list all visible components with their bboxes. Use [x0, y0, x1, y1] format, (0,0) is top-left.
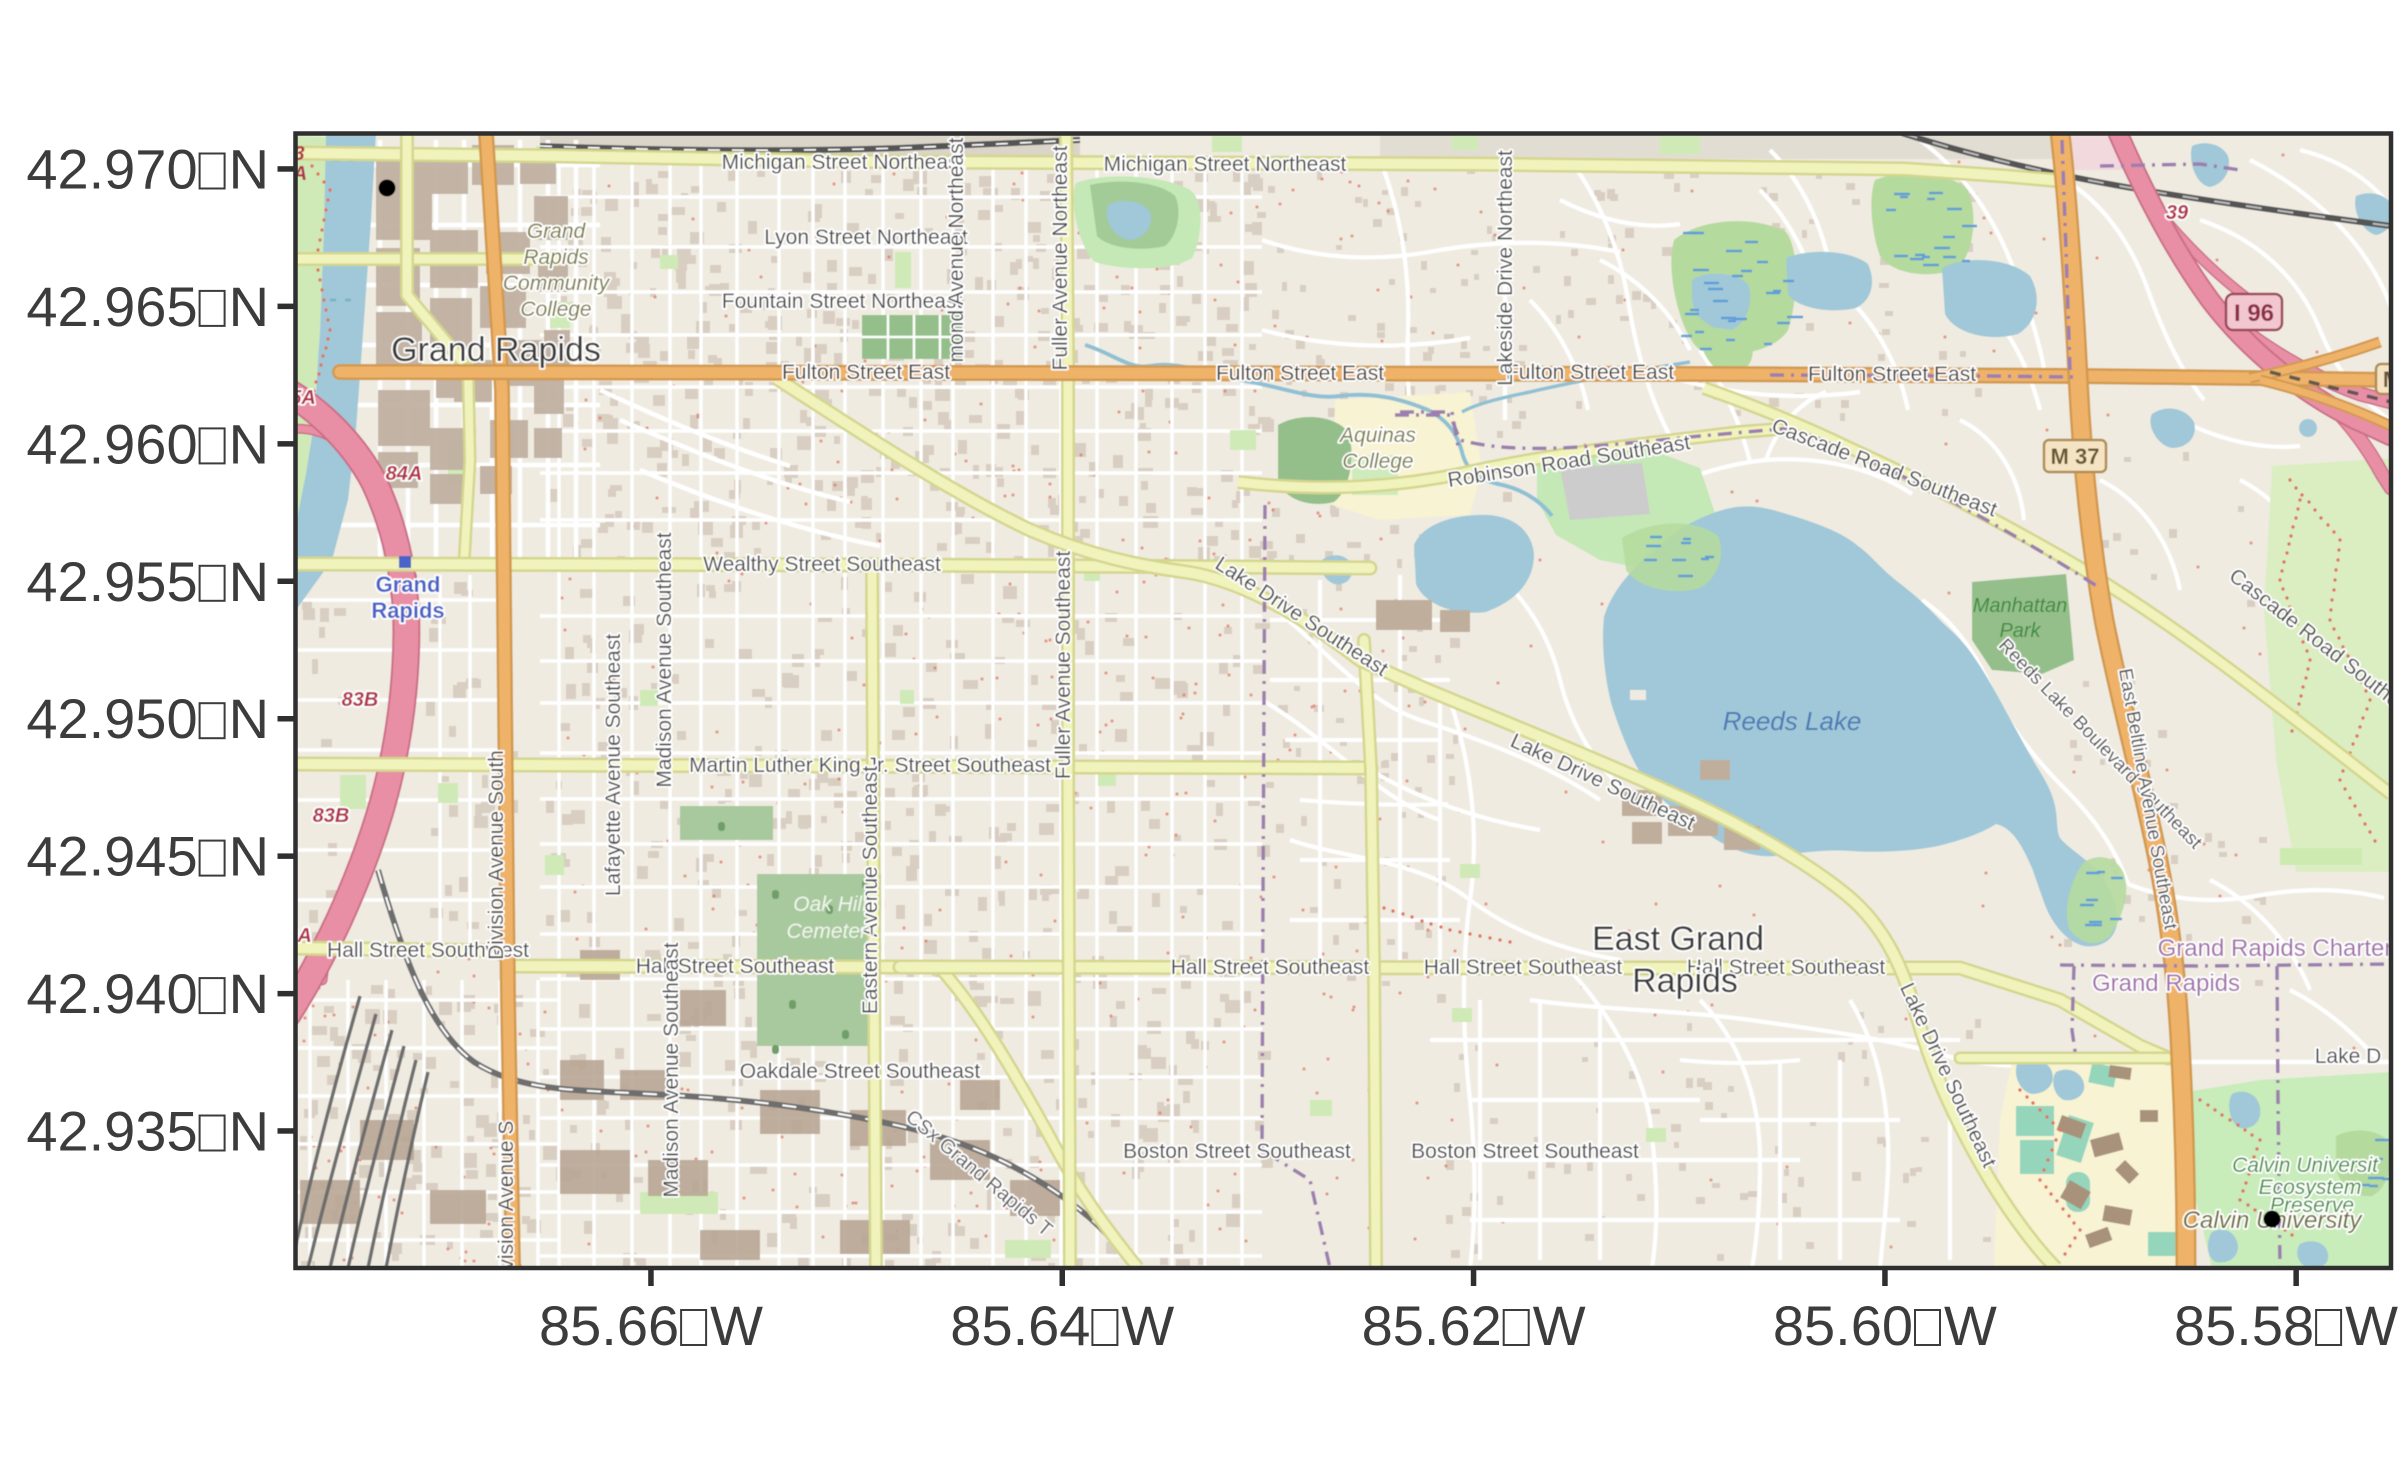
svg-text:Grand Rapids: Grand Rapids — [391, 331, 601, 369]
svg-text:N: N — [229, 1100, 269, 1163]
svg-text:Lake D: Lake D — [2315, 1045, 2382, 1068]
svg-text:85.64: 85.64 — [950, 1294, 1090, 1357]
svg-text:W: W — [2345, 1294, 2398, 1357]
svg-text:42.940: 42.940 — [26, 962, 197, 1025]
svg-text:Grand Rapids: Grand Rapids — [2092, 970, 2240, 997]
svg-text:42.970: 42.970 — [26, 138, 197, 201]
svg-text:N: N — [229, 550, 269, 613]
svg-text:Division Avenue S: Division Avenue S — [495, 1121, 518, 1290]
svg-text:42.945: 42.945 — [26, 825, 197, 888]
svg-text:Fulton Street East: Fulton Street East — [782, 361, 950, 384]
svg-text:84A: 84A — [386, 463, 423, 485]
svg-text:Rapids: Rapids — [1632, 962, 1738, 1000]
svg-text:W: W — [1944, 1294, 1997, 1357]
svg-text:Rapids: Rapids — [371, 598, 444, 623]
svg-text:83B: 83B — [342, 689, 379, 711]
svg-text:College: College — [1342, 450, 1413, 473]
svg-text:N: N — [229, 412, 269, 475]
svg-text:W: W — [1121, 1294, 1174, 1357]
svg-text:Oakdale Street Southeast: Oakdale Street Southeast — [740, 1060, 981, 1083]
svg-text:85.58: 85.58 — [2174, 1294, 2314, 1357]
svg-text:East Grand: East Grand — [1592, 920, 1764, 958]
svg-text:Aquinas: Aquinas — [1338, 424, 1416, 447]
svg-text:Community: Community — [503, 272, 611, 295]
svg-text:N: N — [229, 687, 269, 750]
svg-text:N: N — [229, 825, 269, 888]
svg-text:83B: 83B — [313, 805, 350, 827]
svg-text:Fulton Street East: Fulton Street East — [1216, 362, 1384, 385]
svg-text:Boston Street Southeast: Boston Street Southeast — [1411, 1140, 1639, 1163]
svg-text:Boston Street Southeast: Boston Street Southeast — [1123, 1140, 1351, 1163]
svg-text:Fulton Street East: Fulton Street East — [1808, 363, 1976, 386]
svg-text:Oak Hill: Oak Hill — [793, 893, 868, 916]
svg-text:Fuller Avenue Northeast: Fuller Avenue Northeast — [1049, 145, 1072, 370]
svg-text:Hall Street Southeast: Hall Street Southeast — [1171, 956, 1370, 979]
svg-text:Division Avenue South: Division Avenue South — [485, 750, 508, 960]
svg-text:I 96: I 96 — [2234, 300, 2274, 327]
svg-text:Grand: Grand — [376, 572, 441, 597]
svg-text:Lafayette Avenue Southeast: Lafayette Avenue Southeast — [602, 634, 625, 896]
svg-text:Grand Rapids Charter: Grand Rapids Charter — [2158, 935, 2393, 962]
svg-text:85.60: 85.60 — [1773, 1294, 1913, 1357]
svg-text:42.955: 42.955 — [26, 550, 197, 613]
svg-text:Rapids: Rapids — [523, 246, 589, 269]
svg-text:Hall Street Southeast: Hall Street Southeast — [1424, 956, 1623, 979]
svg-text:Cemetery: Cemetery — [786, 920, 879, 943]
svg-text:42.950: 42.950 — [26, 687, 197, 750]
svg-text:Fuller Avenue Southeast: Fuller Avenue Southeast — [1052, 551, 1075, 780]
svg-text:85.62: 85.62 — [1362, 1294, 1502, 1357]
svg-text:Lyon Street Northeast: Lyon Street Northeast — [764, 226, 968, 249]
svg-text:Calvin Universit: Calvin Universit — [2232, 1154, 2379, 1177]
svg-text:N: N — [229, 138, 269, 201]
svg-text:College: College — [520, 298, 591, 321]
svg-text:Madison Avenue Southeast: Madison Avenue Southeast — [660, 942, 683, 1197]
svg-text:Madison Avenue Southeast: Madison Avenue Southeast — [653, 532, 676, 787]
svg-text:N: N — [229, 962, 269, 1025]
svg-text:Michigan Street Northeast: Michigan Street Northeast — [722, 151, 965, 174]
svg-text:W: W — [710, 1294, 763, 1357]
svg-text:mond Avenue Northeast: mond Avenue Northeast — [945, 137, 968, 362]
svg-text:42.965: 42.965 — [26, 275, 197, 338]
svg-text:42.935: 42.935 — [26, 1100, 197, 1163]
svg-text:85.66: 85.66 — [539, 1294, 679, 1357]
svg-text:39: 39 — [2166, 202, 2189, 224]
svg-text:Wealthy Street Southeast: Wealthy Street Southeast — [703, 553, 941, 576]
svg-text:Park: Park — [1999, 620, 2041, 642]
svg-text:Manhattan: Manhattan — [1973, 595, 2068, 617]
svg-text:Lakeside Drive Northeast: Lakeside Drive Northeast — [1494, 150, 1517, 386]
svg-text:Fountain Street Northeast: Fountain Street Northeast — [722, 290, 963, 313]
svg-text:N: N — [229, 275, 269, 338]
svg-text:Michigan Street Northeast: Michigan Street Northeast — [1104, 153, 1347, 176]
svg-text:42.960: 42.960 — [26, 412, 197, 475]
svg-text:Grand: Grand — [527, 220, 587, 243]
svg-text:W: W — [1533, 1294, 1586, 1357]
svg-text:Fulton Street East: Fulton Street East — [1506, 361, 1674, 384]
svg-text:Reeds Lake: Reeds Lake — [1723, 706, 1862, 736]
svg-text:Eastern Avenue Southeast: Eastern Avenue Southeast — [859, 766, 882, 1014]
svg-text:M 37: M 37 — [2051, 444, 2100, 469]
